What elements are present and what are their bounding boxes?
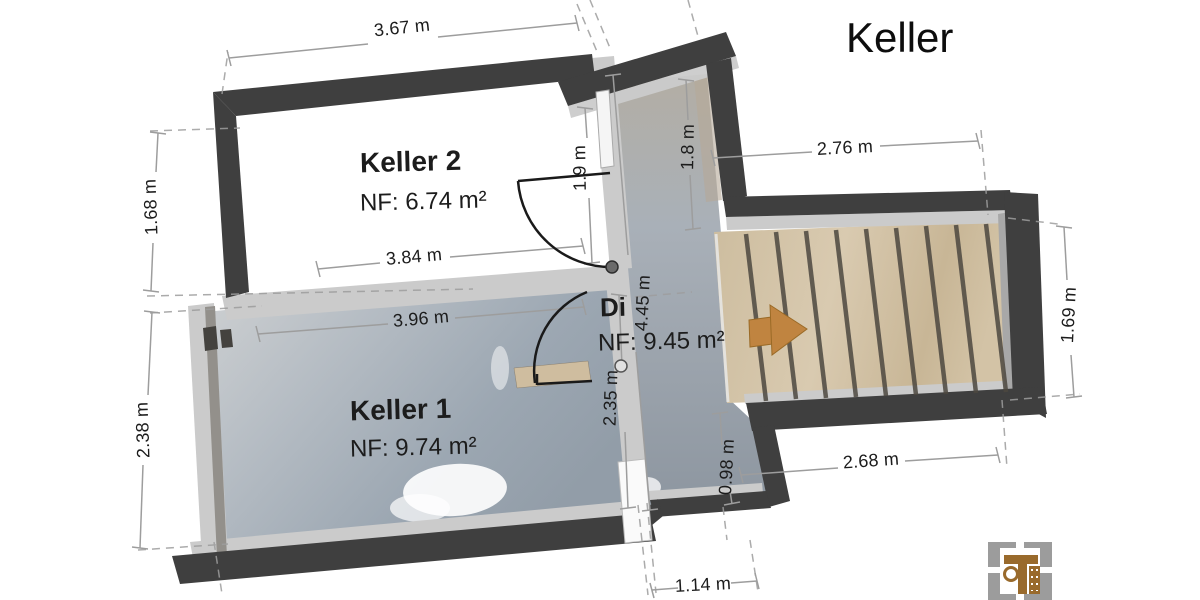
brand-logo xyxy=(988,542,1052,600)
building-icon xyxy=(1029,566,1040,594)
dimension-label-left-lower: 2.38 m xyxy=(132,402,155,459)
column-shaft-icon xyxy=(1018,555,1027,594)
dimension-label-stairs-bottom: 2.68 m xyxy=(842,449,900,474)
dimension-label-left-upper: 1.68 m xyxy=(140,179,163,236)
floor-plan-canvas: Keller Keller 2 NF: 6.74 m² Keller 1 NF:… xyxy=(0,0,1200,600)
dimension-label-door-upper: 1.9 m xyxy=(569,145,591,191)
page-title: Keller xyxy=(846,14,953,62)
keller2-top-wall xyxy=(213,54,595,116)
scan-hole xyxy=(491,346,509,390)
room-label-diele: Di xyxy=(600,292,627,324)
keller2-left-wall xyxy=(213,92,249,298)
dimension-label-keller1-height: 2.35 m xyxy=(600,370,623,427)
keller2-door xyxy=(518,173,618,273)
dimension-label-corridor-length: 4.45 m xyxy=(631,274,655,331)
room-label-keller2: Keller 2 xyxy=(360,145,462,180)
room-label-keller1: Keller 1 xyxy=(350,393,452,428)
scan-hole xyxy=(390,494,450,522)
stairs-floor xyxy=(714,221,1008,403)
room-area-keller1: NF: 9.74 m² xyxy=(350,432,477,463)
room-area-diele: NF: 9.45 m² xyxy=(598,326,725,357)
dimension-label-stub-height: 0.98 m xyxy=(715,438,739,495)
dimension-label-bottom-stub: 1.14 m xyxy=(674,573,731,597)
column-scroll-icon xyxy=(1003,566,1019,582)
dimension-label-corridor-upper: 1.8 m xyxy=(677,124,699,170)
dimension-label-stairs-right: 1.69 m xyxy=(1057,286,1081,343)
dimension-label-stairs-top: 2.76 m xyxy=(816,136,873,160)
room-area-keller2: NF: 6.74 m² xyxy=(360,186,487,217)
